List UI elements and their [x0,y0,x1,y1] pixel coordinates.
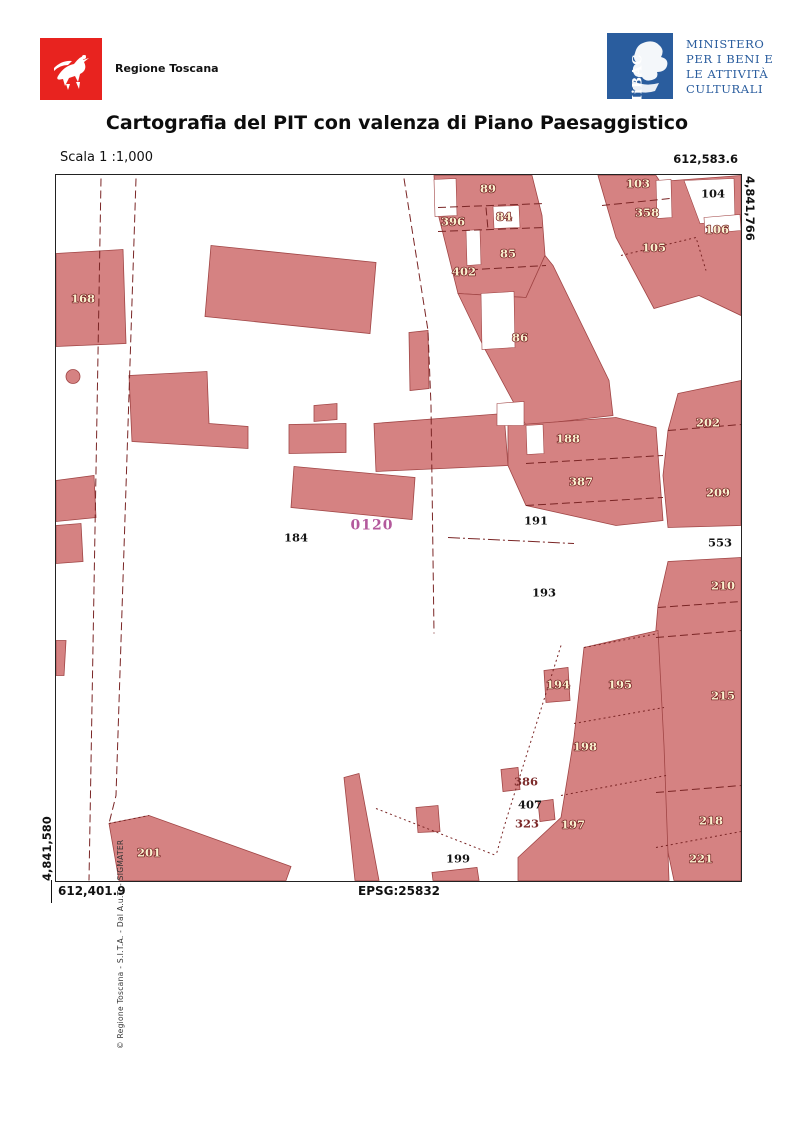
parcel-label-197: 197 [561,818,585,832]
parcel-label-198: 198 [573,740,597,754]
parcel-label-553: 553 [708,536,732,550]
region-name: Regione Toscana [115,62,219,75]
parcel-label-193: 193 [532,586,556,600]
parcel-label-184: 184 [284,531,308,545]
parcel-label-0120: 0120 [351,518,394,534]
parcel-label-106: 106 [705,223,729,237]
coordinate-tick [51,880,52,903]
coordinate-left: 4,841,580 [40,816,54,881]
scale-label: Scala 1 :1,000 [60,150,153,165]
parcel-label-195: 195 [608,678,632,692]
parcel-label-191: 191 [524,514,548,528]
parcel-label-188: 188 [556,432,580,446]
epsg-label: EPSG:25832 [358,884,440,898]
parcel-label-358: 358 [635,206,659,220]
parcel-label-199: 199 [446,852,470,866]
document-page: Regione Toscana MiBAC MINISTERO PER I BE… [0,0,794,1123]
ministry-line-1: MINISTERO [686,37,773,52]
parcel-label-104: 104 [701,187,725,201]
parcel-label-86: 86 [512,331,528,345]
parcel-label-85: 85 [500,247,516,261]
parcel-label-402: 402 [452,265,476,279]
parcel-label-89: 89 [480,182,496,196]
parcel-label-105: 105 [642,241,666,255]
parcel-label-386: 386 [514,775,538,789]
parcel-label-407: 407 [518,798,542,812]
ministry-line-4: CULTURALI [686,82,773,97]
cadastral-map: 1688939684854028610310435810610518838719… [56,175,741,881]
ministry-name: MINISTERO PER I BENI E LE ATTIVITÀ CULTU… [686,37,773,97]
parcel-label-221: 221 [689,852,713,866]
pegasus-icon [40,38,102,100]
page-title: Cartografia del PIT con valenza di Piano… [0,112,794,134]
coordinate-top-right: 612,583.6 [673,152,738,166]
parcel-label-215: 215 [711,689,735,703]
parcel-label-103: 103 [626,177,650,191]
parcel-label-168: 168 [71,292,95,306]
map-frame: 1688939684854028610310435810610518838719… [55,174,742,882]
regione-toscana-logo [40,38,102,100]
parcel-label-201: 201 [137,846,161,860]
parcel-label-323: 323 [515,817,539,831]
coordinate-right: 4,841,766 [743,176,757,241]
mibac-logo: MiBAC [607,33,673,99]
parcel-label-84: 84 [496,210,512,224]
parcel-label-209: 209 [706,486,730,500]
parcel-label-194: 194 [546,678,570,692]
map-credit: © Regione Toscana - S.I.T.A. - Dal A.u.T… [116,840,125,1049]
ministry-line-2: PER I BENI E [686,52,773,67]
mibac-figure-icon [623,37,671,95]
ministry-line-3: LE ATTIVITÀ [686,67,773,82]
parcel-label-202: 202 [696,416,720,430]
parcel-label-396: 396 [441,215,465,229]
parcel-label-387: 387 [569,475,593,489]
parcel-label-218: 218 [699,814,723,828]
parcel-label-210: 210 [711,579,735,593]
